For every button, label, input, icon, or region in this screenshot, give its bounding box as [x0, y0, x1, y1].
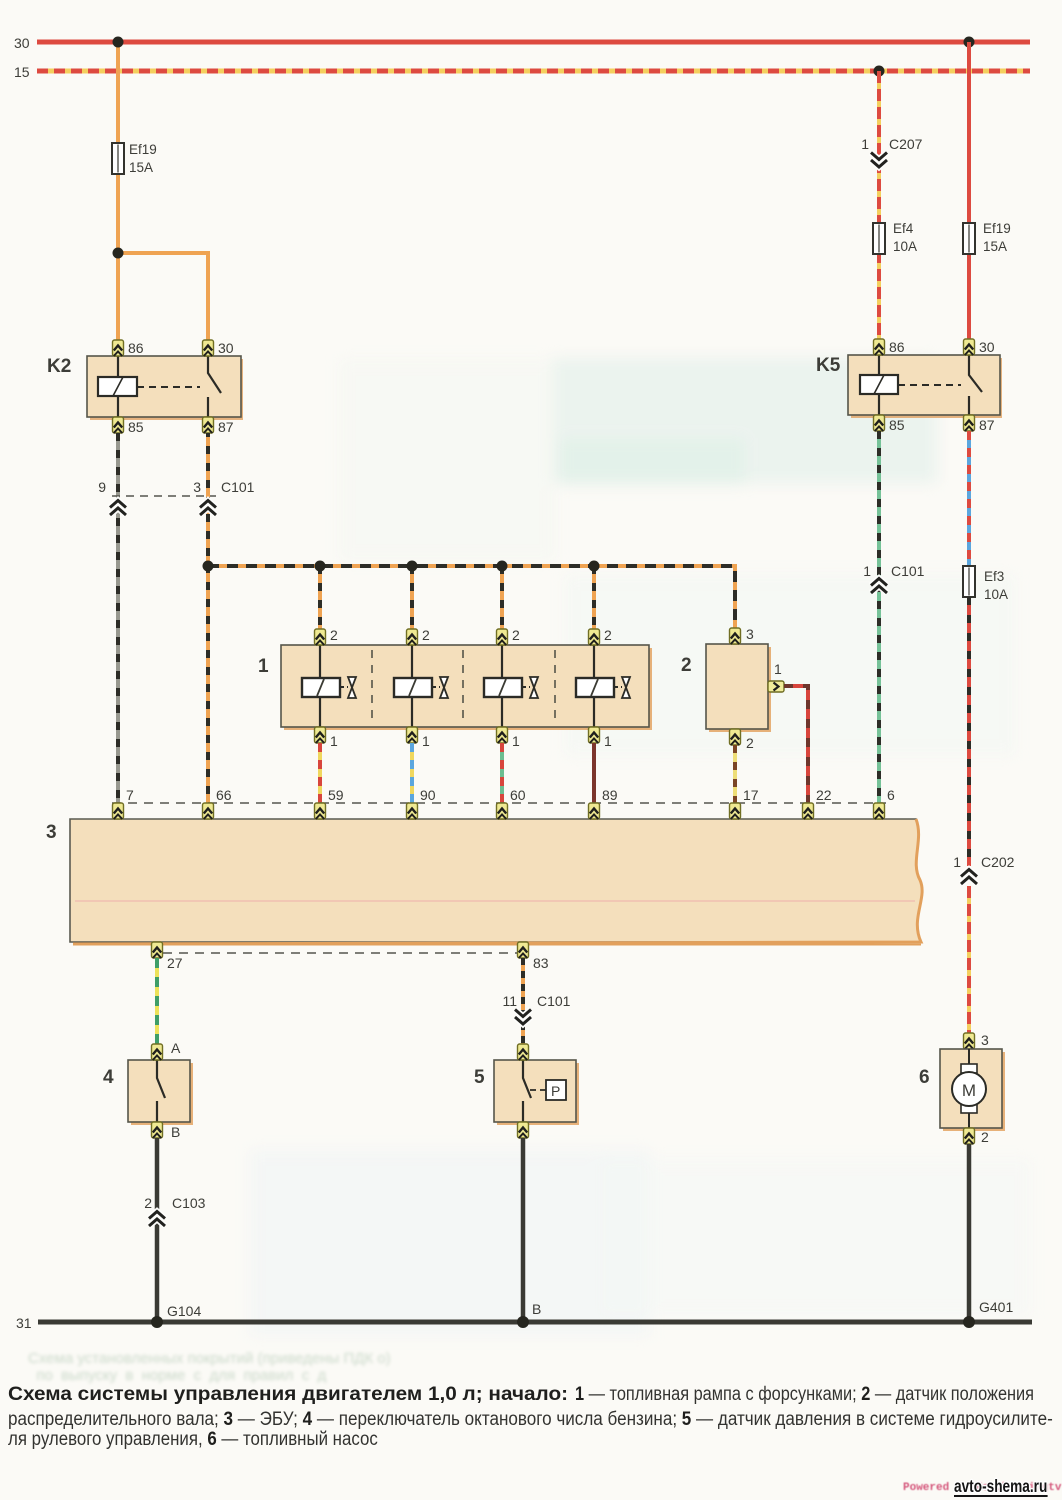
svg-text:15: 15	[14, 64, 30, 80]
svg-text:85: 85	[889, 417, 905, 433]
svg-text:C101: C101	[891, 563, 925, 579]
svg-text:G401: G401	[979, 1299, 1013, 1315]
svg-text:K2: K2	[47, 356, 71, 377]
svg-text:B: B	[532, 1301, 541, 1317]
svg-text:6: 6	[919, 1067, 930, 1088]
svg-text:86: 86	[889, 339, 905, 355]
svg-text:C101: C101	[221, 479, 255, 495]
svg-text:K5: K5	[816, 355, 841, 376]
svg-text:7: 7	[126, 787, 134, 803]
svg-text:5: 5	[474, 1067, 485, 1088]
svg-text:1: 1	[863, 563, 871, 579]
svg-text:1: 1	[774, 661, 782, 677]
svg-text:89: 89	[602, 787, 618, 803]
svg-text:2: 2	[330, 627, 338, 643]
svg-text:2: 2	[681, 655, 692, 676]
svg-text:1: 1	[422, 733, 430, 749]
svg-text:C202: C202	[981, 854, 1015, 870]
svg-text:60: 60	[510, 787, 526, 803]
svg-text:90: 90	[420, 787, 436, 803]
svg-text:Ef19: Ef19	[129, 142, 157, 157]
svg-text:15A: 15A	[129, 160, 153, 175]
svg-text:15A: 15A	[983, 239, 1007, 254]
svg-text:A: A	[171, 1040, 181, 1056]
svg-text:1: 1	[330, 733, 338, 749]
svg-text:83: 83	[533, 955, 549, 971]
svg-text:C207: C207	[889, 136, 923, 152]
svg-text:10A: 10A	[893, 239, 917, 254]
svg-text:10A: 10A	[984, 587, 1008, 602]
svg-text:31: 31	[16, 1315, 32, 1331]
svg-text:2: 2	[512, 627, 520, 643]
svg-text:C103: C103	[172, 1195, 206, 1211]
svg-text:3: 3	[981, 1032, 989, 1048]
svg-text:G104: G104	[167, 1303, 201, 1319]
svg-text:87: 87	[218, 419, 234, 435]
svg-text:Ef19: Ef19	[983, 221, 1011, 236]
svg-text:2: 2	[422, 627, 430, 643]
svg-text:3: 3	[746, 626, 754, 642]
svg-text:1: 1	[258, 656, 269, 677]
svg-text:Ef3: Ef3	[984, 569, 1004, 584]
svg-text:4: 4	[103, 1067, 114, 1088]
svg-text:2: 2	[981, 1129, 989, 1145]
svg-text:C101: C101	[537, 993, 571, 1009]
svg-text:11: 11	[502, 993, 517, 1009]
svg-text:9: 9	[98, 479, 106, 495]
svg-text:85: 85	[128, 419, 144, 435]
svg-text:6: 6	[887, 787, 895, 803]
svg-text:M: M	[962, 1081, 976, 1100]
svg-text:3: 3	[193, 479, 201, 495]
svg-text:2: 2	[746, 735, 754, 751]
svg-text:66: 66	[216, 787, 232, 803]
svg-text:1: 1	[953, 854, 961, 870]
svg-text:87: 87	[979, 417, 995, 433]
svg-text:86: 86	[128, 340, 144, 356]
svg-text:2: 2	[144, 1195, 152, 1211]
svg-text:30: 30	[14, 35, 30, 51]
svg-text:30: 30	[979, 339, 995, 355]
svg-text:B: B	[171, 1124, 180, 1140]
svg-text:P: P	[551, 1083, 560, 1099]
svg-text:1: 1	[861, 136, 869, 152]
svg-text:Ef4: Ef4	[893, 221, 914, 236]
svg-text:30: 30	[218, 340, 234, 356]
svg-text:22: 22	[816, 787, 832, 803]
svg-text:1: 1	[512, 733, 520, 749]
svg-text:2: 2	[604, 627, 612, 643]
svg-text:27: 27	[167, 955, 183, 971]
svg-text:59: 59	[328, 787, 344, 803]
svg-text:17: 17	[743, 787, 759, 803]
svg-text:3: 3	[46, 822, 57, 843]
svg-text:1: 1	[604, 733, 612, 749]
